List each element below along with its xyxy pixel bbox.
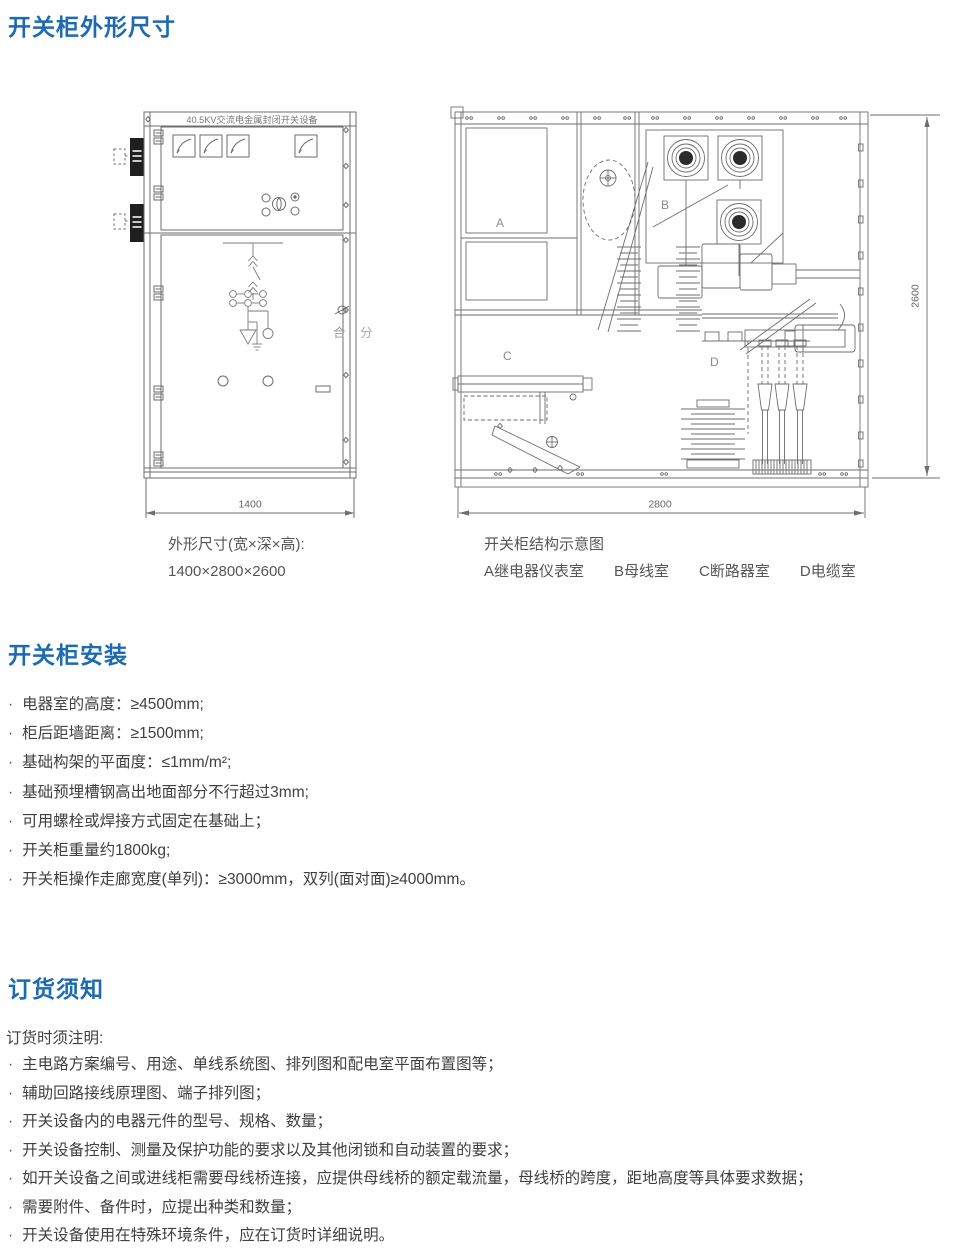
bullet-dot: · bbox=[8, 784, 13, 801]
order-item: ·需要附件、备件时，应提出种类和数量； bbox=[8, 1194, 813, 1223]
order-item-text: 主电路方案编号、用途、单线系统图、排列图和配电室平面布置图等； bbox=[22, 1056, 503, 1073]
install-item: ·开关柜操作走廊宽度(单列)：≥3000mm，双列(面对面)≥4000mm。 bbox=[8, 865, 475, 894]
install-item: ·电器室的高度：≥4500mm; bbox=[8, 690, 475, 719]
ordering-list: ·主电路方案编号、用途、单线系统图、排列图和配电室平面布置图等； ·辅助回路接线… bbox=[8, 1051, 813, 1250]
compartment-a-label: A bbox=[496, 216, 504, 230]
section-title-installation: 开关柜安装 bbox=[8, 636, 128, 670]
install-item-text: 开关柜重量约1800kg; bbox=[22, 842, 170, 859]
section-title-ordering: 订货须知 bbox=[8, 970, 104, 1004]
install-item: ·柜后距墙距离：≥1500mm; bbox=[8, 719, 475, 748]
section-view-caption: 开关柜结构示意图 A继电器仪表室 B母线室 C断路器室 D电缆室 bbox=[484, 531, 856, 585]
compartment-b-label: B bbox=[661, 198, 669, 212]
front-view-caption-line1: 外形尺寸(宽×深×高): bbox=[168, 531, 305, 558]
order-item: ·主电路方案编号、用途、单线系统图、排列图和配电室平面布置图等； bbox=[8, 1051, 813, 1080]
close-label: 合 bbox=[333, 325, 346, 340]
bullet-dot: · bbox=[8, 1142, 13, 1159]
bullet-dot: · bbox=[8, 871, 13, 888]
order-item-text: 辅助回路接线原理图、端子排列图； bbox=[22, 1085, 270, 1102]
bullet-dot: · bbox=[8, 1085, 13, 1102]
order-item: ·开关设备内的电器元件的型号、规格、数量； bbox=[8, 1108, 813, 1137]
front-view-caption: 外形尺寸(宽×深×高): 1400×2800×2600 bbox=[168, 531, 305, 585]
install-item: ·基础构架的平面度：≤1mm/m²; bbox=[8, 748, 475, 777]
install-item: ·开关柜重量约1800kg; bbox=[8, 836, 475, 865]
bullet-dot: · bbox=[8, 813, 13, 830]
order-item-text: 开关设备控制、测量及保护功能的要求以及其他闭锁和自动装置的要求； bbox=[22, 1142, 518, 1159]
install-item-text: 可用螺栓或焊接方式固定在基础上； bbox=[22, 813, 270, 830]
height-dimension-label: 2600 bbox=[910, 284, 922, 308]
compartment-legend: A继电器仪表室 B母线室 C断路器室 D电缆室 bbox=[484, 558, 856, 585]
legend-item-d: D电缆室 bbox=[800, 558, 856, 585]
order-item-text: 开关设备内的电器元件的型号、规格、数量； bbox=[22, 1113, 332, 1130]
install-item: ·基础预埋槽钢高出地面部分不行超过3mm; bbox=[8, 778, 475, 807]
bullet-dot: · bbox=[8, 754, 13, 771]
order-item: ·如开关设备之间或进线柜需要母线桥连接，应提供母线桥的额定载流量，母线桥的跨度，… bbox=[8, 1165, 813, 1194]
order-item: ·辅助回路接线原理图、端子排列图； bbox=[8, 1080, 813, 1109]
bullet-dot: · bbox=[8, 842, 13, 859]
bullet-dot: · bbox=[8, 1170, 13, 1187]
order-item-text: 需要附件、备件时，应提出种类和数量； bbox=[22, 1199, 301, 1216]
legend-item-c: C断路器室 bbox=[699, 558, 770, 585]
bullet-dot: · bbox=[8, 1056, 13, 1073]
order-item: ·开关设备控制、测量及保护功能的要求以及其他闭锁和自动装置的要求； bbox=[8, 1137, 813, 1166]
install-item-text: 开关柜操作走廊宽度(单列)：≥3000mm，双列(面对面)≥4000mm。 bbox=[22, 871, 475, 888]
section-title-outline-dimensions: 开关柜外形尺寸 bbox=[8, 8, 176, 42]
order-item-text: 如开关设备之间或进线柜需要母线桥连接，应提供母线桥的额定载流量，母线桥的跨度，距… bbox=[22, 1170, 813, 1187]
section-view-caption-title: 开关柜结构示意图 bbox=[484, 531, 856, 558]
install-item-text: 柜后距墙距离：≥1500mm; bbox=[22, 725, 204, 742]
compartment-c-label: C bbox=[503, 349, 512, 363]
width-dimension-label: 1400 bbox=[238, 499, 262, 511]
install-item-text: 基础预埋槽钢高出地面部分不行超过3mm; bbox=[22, 784, 309, 801]
section-view-drawing: A B C D 2800 2600 bbox=[440, 104, 979, 526]
front-view-drawing: 40.5KV交流电金属封闭开关设备 合 分 1400 bbox=[108, 104, 390, 526]
installation-list: ·电器室的高度：≥4500mm; ·柜后距墙距离：≥1500mm; ·基础构架的… bbox=[8, 690, 475, 894]
depth-dimension-label: 2800 bbox=[648, 499, 672, 511]
catalog-page: 开关柜外形尺寸 bbox=[0, 0, 979, 1250]
bullet-dot: · bbox=[8, 725, 13, 742]
order-item-text: 开关设备使用在特殊环境条件，应在订货时详细说明。 bbox=[22, 1227, 394, 1244]
open-label: 分 bbox=[360, 326, 373, 340]
bullet-dot: · bbox=[8, 1227, 13, 1244]
ordering-intro: 订货时须注明: bbox=[6, 1026, 103, 1048]
mimic-circuit-diagram bbox=[223, 243, 283, 350]
install-item: ·可用螺栓或焊接方式固定在基础上； bbox=[8, 807, 475, 836]
bullet-dot: · bbox=[8, 1113, 13, 1130]
legend-item-b: B母线室 bbox=[614, 558, 669, 585]
bullet-dot: · bbox=[8, 1199, 13, 1216]
legend-item-a: A继电器仪表室 bbox=[484, 558, 584, 585]
install-item-text: 基础构架的平面度：≤1mm/m²; bbox=[22, 754, 231, 771]
bullet-dot: · bbox=[8, 696, 13, 713]
nameplate-text: 40.5KV交流电金属封闭开关设备 bbox=[186, 114, 317, 125]
install-item-text: 电器室的高度：≥4500mm; bbox=[22, 696, 204, 713]
compartment-d-label: D bbox=[710, 355, 719, 369]
order-item: ·开关设备使用在特殊环境条件，应在订货时详细说明。 bbox=[8, 1222, 813, 1250]
front-view-caption-line2: 1400×2800×2600 bbox=[168, 558, 305, 585]
